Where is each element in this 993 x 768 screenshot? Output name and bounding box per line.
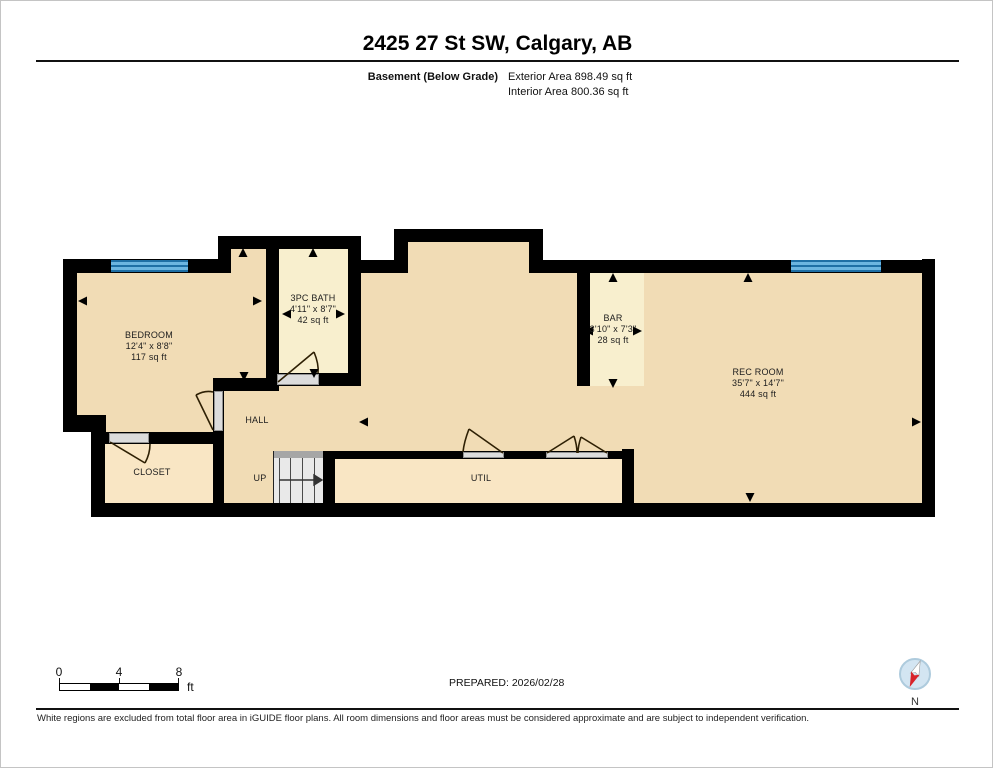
room-name: BAR — [568, 313, 658, 324]
plan-annotations — [1, 1, 993, 768]
label-util: UTIL — [456, 473, 506, 484]
footer-divider — [36, 708, 959, 710]
scale-segment — [149, 684, 179, 690]
compass-north-label: N — [911, 696, 919, 708]
label-closet: CLOSET — [122, 467, 182, 478]
room-area: 117 sq ft — [104, 352, 194, 363]
scale-segment — [119, 684, 149, 690]
room-label-bar: BAR 3'10" x 7'3" 28 sq ft — [568, 313, 658, 346]
room-name: REC ROOM — [708, 367, 808, 378]
scale-segment — [90, 684, 120, 690]
stairs-arrow — [279, 475, 322, 485]
room-label-bath: 3PC BATH 4'11" x 8'7" 42 sq ft — [268, 293, 358, 326]
scale-tick-0: 0 — [52, 665, 66, 679]
floor-plan: BEDROOM 12'4" x 8'8" 117 sq ft 3PC BATH … — [1, 1, 993, 768]
room-area: 444 sq ft — [708, 389, 808, 400]
room-name: 3PC BATH — [268, 293, 358, 304]
room-name: BEDROOM — [104, 330, 194, 341]
room-label-bedroom: BEDROOM 12'4" x 8'8" 117 sq ft — [104, 330, 194, 363]
scale-tick-4: 4 — [112, 665, 126, 679]
door-swings — [110, 352, 607, 463]
disclaimer-text: White regions are excluded from total fl… — [37, 713, 809, 724]
room-dims: 35'7" x 14'7" — [708, 378, 808, 389]
scale-unit: ft — [187, 680, 194, 694]
scale-segment — [60, 684, 90, 690]
label-up: UP — [247, 473, 273, 484]
room-dims: 12'4" x 8'8" — [104, 341, 194, 352]
room-label-rec-room: REC ROOM 35'7" x 14'7" 444 sq ft — [708, 367, 808, 400]
room-dims: 4'11" x 8'7" — [268, 304, 358, 315]
label-hall: HALL — [237, 415, 277, 426]
floor-plan-page: 2425 27 St SW, Calgary, AB Basement (Bel… — [0, 0, 993, 768]
room-area: 28 sq ft — [568, 335, 658, 346]
room-area: 42 sq ft — [268, 315, 358, 326]
prepared-date: PREPARED: 2026/02/28 — [449, 677, 564, 689]
room-dims: 3'10" x 7'3" — [568, 324, 658, 335]
compass-icon: N — [894, 654, 936, 708]
scale-bar — [59, 683, 179, 691]
scale-tick-8: 8 — [172, 665, 186, 679]
